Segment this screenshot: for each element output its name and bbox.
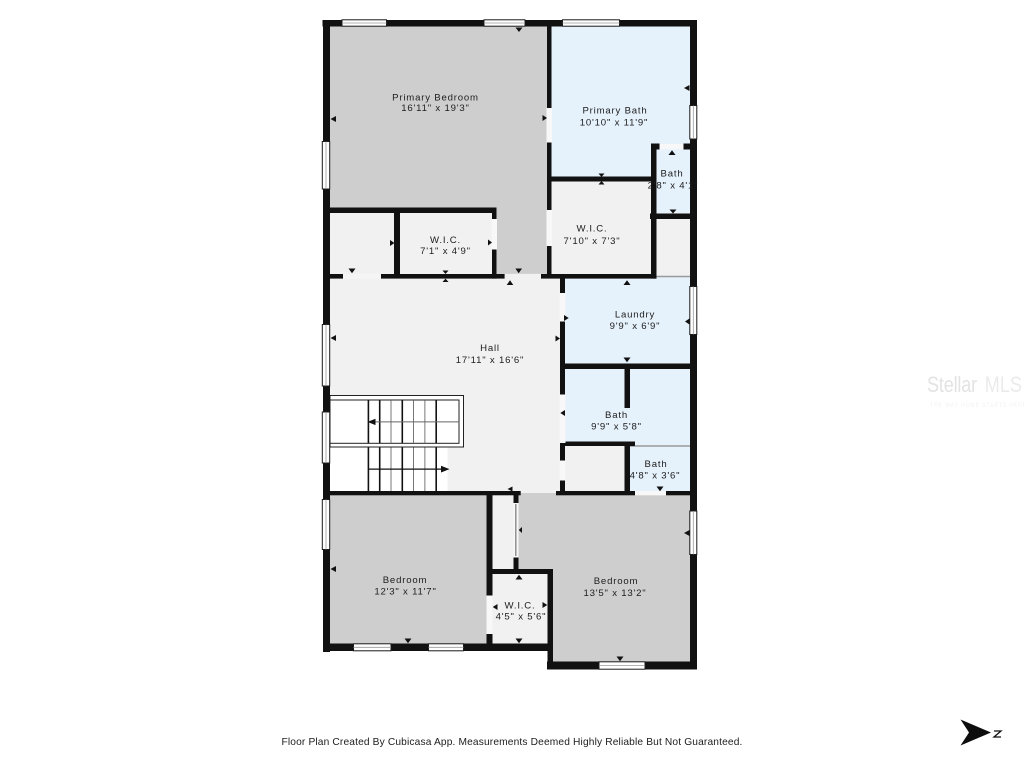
svg-text:17'11" x 16'6": 17'11" x 16'6" [456,355,524,366]
svg-text:W.I.C.: W.I.C. [505,601,536,612]
svg-text:Bedroom: Bedroom [594,576,639,587]
svg-text:4'5" x 5'6": 4'5" x 5'6" [496,612,547,623]
svg-text:THE WAY HOME STARTS HERE: THE WAY HOME STARTS HERE [930,403,1024,410]
svg-text:Primary Bath: Primary Bath [582,106,647,117]
svg-text:Laundry: Laundry [615,310,655,321]
svg-text:16'11" x 19'3": 16'11" x 19'3" [401,103,469,114]
svg-text:Bath: Bath [605,410,628,421]
svg-text:Bath: Bath [661,169,684,180]
svg-text:MLS: MLS [985,373,1022,397]
svg-text:12'3" x 11'7": 12'3" x 11'7" [374,587,436,598]
svg-text:4'8" x 3'6": 4'8" x 3'6" [630,471,681,482]
svg-text:Floor Plan Created By Cubicasa: Floor Plan Created By Cubicasa App. Meas… [282,737,743,748]
svg-text:7'10" x 7'3": 7'10" x 7'3" [564,236,621,247]
svg-text:9'9" x 5'8": 9'9" x 5'8" [591,422,642,433]
svg-text:Hall: Hall [480,343,500,354]
svg-text:13'5" x 13'2": 13'5" x 13'2" [583,588,646,599]
svg-text:2'8" x 4'1": 2'8" x 4'1" [648,181,699,192]
svg-text:W.I.C.: W.I.C. [430,235,461,246]
svg-text:10'10" x 11'9": 10'10" x 11'9" [580,118,648,129]
svg-text:9'9" x 6'9": 9'9" x 6'9" [610,321,661,332]
svg-text:Stellar: Stellar [927,373,977,397]
svg-text:Bedroom: Bedroom [383,575,428,586]
svg-text:7'1" x 4'9": 7'1" x 4'9" [420,246,471,257]
svg-text:Bath: Bath [645,459,668,470]
svg-text:W.I.C.: W.I.C. [577,224,608,235]
